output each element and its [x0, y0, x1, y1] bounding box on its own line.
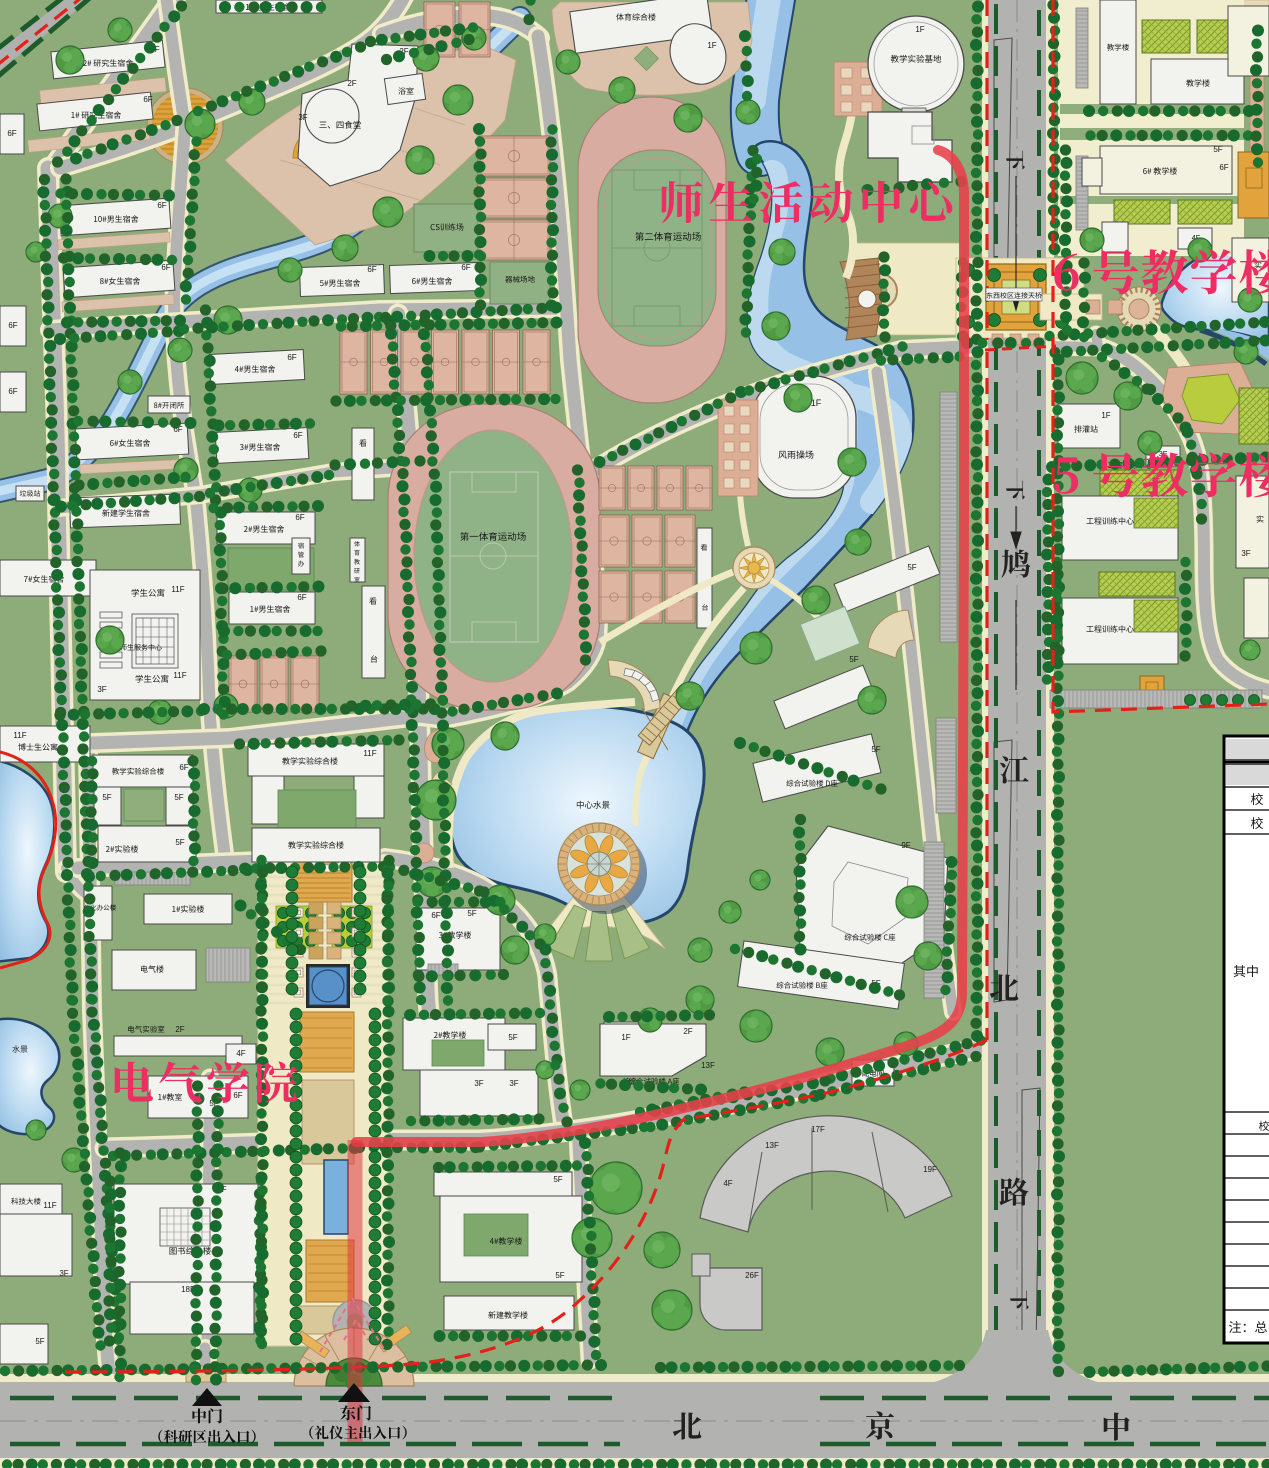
svg-text:5F: 5F [175, 838, 184, 847]
svg-text:11F: 11F [171, 585, 184, 594]
svg-text:6F: 6F [287, 353, 296, 362]
svg-text:5F: 5F [35, 1337, 44, 1346]
svg-text:6F: 6F [7, 129, 16, 138]
svg-text:6F: 6F [461, 263, 470, 272]
svg-text:13F: 13F [765, 1141, 779, 1150]
svg-text:6F: 6F [431, 911, 440, 920]
svg-text:5F: 5F [871, 745, 880, 754]
svg-text:3F: 3F [509, 1079, 518, 1088]
svg-text:3F: 3F [474, 1079, 483, 1088]
svg-text:6F: 6F [297, 593, 306, 602]
svg-text:6F: 6F [8, 321, 17, 330]
svg-text:6F: 6F [295, 513, 304, 522]
svg-text:6F: 6F [8, 387, 17, 396]
svg-text:1F: 1F [1101, 411, 1110, 420]
svg-text:11F: 11F [173, 671, 186, 680]
svg-text:5F: 5F [174, 793, 183, 802]
svg-text:1F: 1F [621, 1033, 630, 1042]
svg-text:5F: 5F [849, 655, 858, 664]
svg-text:3F: 3F [298, 113, 307, 122]
svg-text:5F: 5F [553, 1175, 562, 1184]
svg-text:6F: 6F [179, 763, 188, 772]
svg-text:1F: 1F [707, 41, 716, 50]
svg-text:2F: 2F [683, 1027, 692, 1036]
svg-text:6F: 6F [233, 1091, 242, 1100]
svg-text:26F: 26F [745, 1271, 759, 1280]
svg-text:3F: 3F [97, 685, 106, 694]
svg-text:6F: 6F [1219, 163, 1228, 172]
svg-text:17F: 17F [811, 1125, 825, 1134]
svg-text:1F: 1F [915, 25, 924, 34]
svg-text:6F: 6F [367, 265, 376, 274]
svg-text:2F: 2F [175, 1025, 184, 1034]
svg-text:3F: 3F [1241, 549, 1250, 558]
svg-text:6F: 6F [293, 431, 302, 440]
svg-text:4F: 4F [236, 1049, 245, 1058]
svg-text:6F: 6F [143, 95, 152, 104]
svg-text:3F: 3F [59, 1269, 68, 1278]
svg-text:19F: 19F [923, 1165, 937, 1174]
svg-text:2F: 2F [347, 79, 356, 88]
svg-text:11F: 11F [13, 731, 26, 740]
svg-text:5F: 5F [467, 909, 476, 918]
svg-text:11F: 11F [43, 1201, 56, 1210]
svg-text:4F: 4F [723, 1179, 732, 1188]
svg-text:5F: 5F [907, 563, 916, 572]
svg-text:13F: 13F [701, 1061, 715, 1070]
svg-text:5F: 5F [555, 1271, 564, 1280]
svg-text:9F: 9F [901, 841, 910, 850]
svg-text:5F: 5F [102, 793, 111, 802]
svg-text:5F: 5F [508, 1033, 517, 1042]
svg-text:5F: 5F [1213, 145, 1222, 154]
svg-text:11F: 11F [363, 749, 376, 758]
svg-text:6F: 6F [157, 201, 166, 210]
